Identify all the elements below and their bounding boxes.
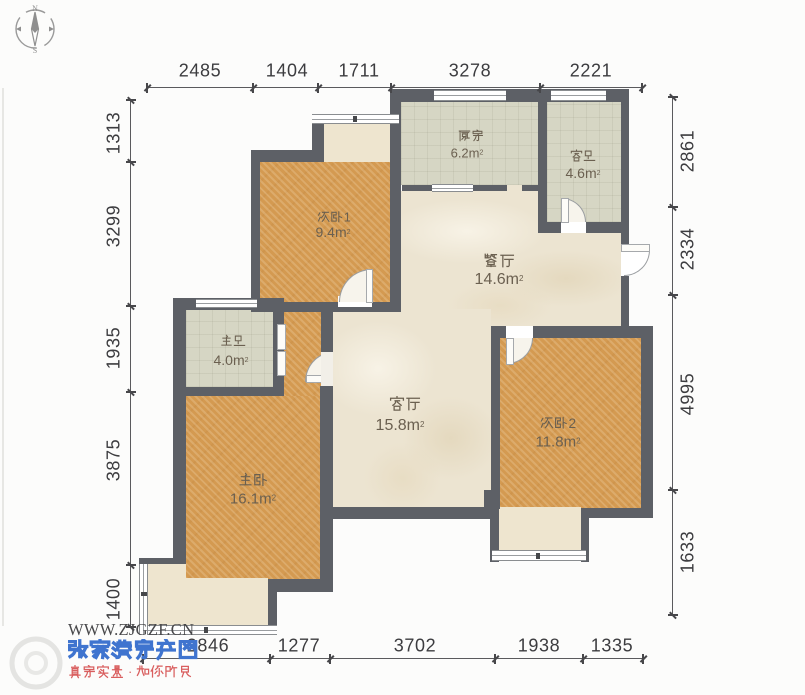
svg-text:S: S xyxy=(33,46,37,54)
svg-text:2: 2 xyxy=(568,416,576,430)
svg-text:N: N xyxy=(32,4,38,13)
svg-text:1: 1 xyxy=(344,211,351,224)
